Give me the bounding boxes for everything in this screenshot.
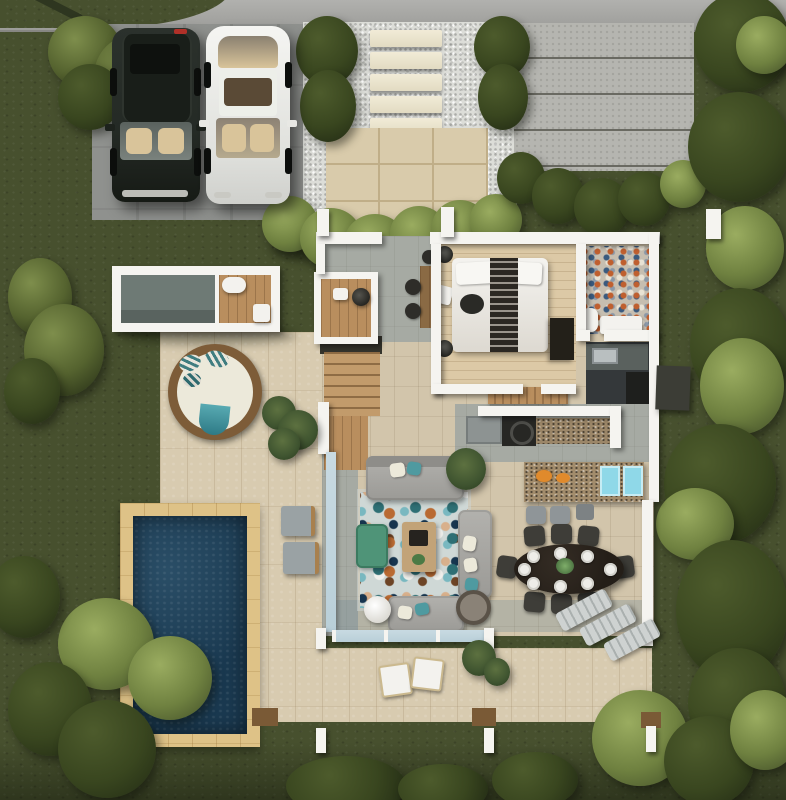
outbuilding-sink xyxy=(222,277,246,293)
tray xyxy=(409,530,428,546)
patio-chair xyxy=(410,656,445,692)
stove-burner xyxy=(510,421,534,445)
sedan-mirror xyxy=(287,120,297,127)
tree xyxy=(58,700,156,798)
plate xyxy=(518,563,531,576)
wall-bedroom-west xyxy=(431,244,441,394)
daybed-throw xyxy=(198,404,231,437)
suv-grille xyxy=(122,190,188,197)
wall-bedroom-south-a xyxy=(431,384,523,394)
wire-chair xyxy=(456,590,491,625)
stepping-stone xyxy=(370,74,442,91)
tree xyxy=(736,16,786,74)
kitchen-sink xyxy=(592,348,618,364)
terrace-plant xyxy=(484,658,510,686)
placemat xyxy=(600,466,620,496)
plate xyxy=(527,577,540,590)
entry-post xyxy=(317,209,329,236)
suv-mirror xyxy=(105,124,115,131)
wall-bathroom-south-a xyxy=(576,330,590,341)
pouf xyxy=(364,596,391,623)
plate xyxy=(554,580,567,593)
bed xyxy=(452,258,548,352)
patio-chair xyxy=(378,662,413,698)
mullion xyxy=(436,630,440,642)
pergola-post xyxy=(316,628,326,649)
sedan-seat xyxy=(250,124,274,152)
centerpiece-plant xyxy=(556,558,574,574)
round-daybed xyxy=(168,344,262,440)
stepping-stone xyxy=(370,96,442,113)
mullion xyxy=(384,630,388,642)
sedan-headlight xyxy=(214,192,231,198)
glass-wall-west xyxy=(326,452,336,632)
bed-throw xyxy=(460,294,484,314)
sedan-rear-window xyxy=(218,36,278,68)
stairs xyxy=(324,352,380,416)
placemat xyxy=(623,466,643,496)
cushion xyxy=(463,557,478,573)
concrete-pad xyxy=(514,23,694,171)
desk-paper xyxy=(333,288,348,300)
white-sedan xyxy=(206,26,290,204)
sedan-wheel xyxy=(285,62,292,88)
dining-chair xyxy=(523,525,546,547)
cushion xyxy=(389,462,406,478)
hedge xyxy=(478,64,528,130)
suv-wheel xyxy=(194,148,201,176)
pergola-post xyxy=(646,726,656,752)
cushion xyxy=(397,605,413,620)
wall-west-upper xyxy=(316,244,325,274)
flower-bowl xyxy=(556,473,570,483)
sedan-headlight xyxy=(265,192,282,198)
bar-stool xyxy=(526,506,546,524)
side-table xyxy=(576,504,594,520)
poolside-chair xyxy=(283,542,319,574)
suv-seat xyxy=(126,128,152,154)
wood-pad xyxy=(472,708,496,726)
tree xyxy=(4,358,60,424)
wall-bedroom-south-b xyxy=(541,384,576,394)
dishwasher xyxy=(466,416,502,444)
plate xyxy=(604,563,617,576)
flower-bowl xyxy=(536,470,552,482)
plate xyxy=(581,550,594,563)
indoor-plant xyxy=(446,448,486,490)
sofa-right xyxy=(458,510,492,598)
sedan-sunroof xyxy=(224,78,272,106)
suv-wheel xyxy=(110,68,117,96)
dining-chair xyxy=(523,591,546,613)
wall-bathroom-west xyxy=(576,244,586,336)
cushion xyxy=(462,535,477,552)
wood-pad xyxy=(252,708,278,726)
cushion-teal xyxy=(414,602,430,616)
tree xyxy=(492,752,578,800)
entry-post xyxy=(441,207,454,237)
kitchen-counter xyxy=(536,418,610,444)
tree xyxy=(688,92,786,202)
glass-wall-south xyxy=(332,630,492,642)
study-walls xyxy=(314,272,378,344)
suv-wheel xyxy=(194,68,201,96)
bed-runner xyxy=(490,258,518,352)
sedan-seat xyxy=(222,124,246,152)
outbuilding-cabinet xyxy=(253,304,270,322)
sedan-wheel xyxy=(285,148,292,174)
terrace-palm xyxy=(268,428,300,460)
tree xyxy=(700,338,784,434)
wall-west-mid xyxy=(318,402,329,454)
site-plan-render xyxy=(0,0,786,800)
suv-sunroof xyxy=(130,44,180,74)
suv-taillight xyxy=(174,29,187,34)
hedge xyxy=(300,70,356,142)
stepping-stone xyxy=(370,30,442,47)
plate xyxy=(527,550,540,563)
sofa-bottom xyxy=(388,596,464,632)
dining-chair xyxy=(551,524,572,544)
coffee-table xyxy=(402,522,436,572)
suv-wheel xyxy=(110,148,117,176)
sedan-mirror xyxy=(199,120,209,127)
stool xyxy=(405,279,421,295)
wall-hall xyxy=(478,406,618,416)
bar-stool xyxy=(550,506,570,524)
wall-front-right xyxy=(430,232,660,244)
fridge xyxy=(626,372,650,404)
cushion-teal xyxy=(406,461,422,476)
wall-stub xyxy=(610,406,621,448)
pergola-post xyxy=(316,728,326,753)
daybed-pillow xyxy=(183,373,201,387)
desk-chair xyxy=(352,288,370,306)
ac-unit xyxy=(655,365,691,410)
wardrobe xyxy=(550,318,574,360)
stepping-stone xyxy=(370,52,442,69)
suv-seat xyxy=(158,128,184,154)
stove xyxy=(502,414,536,446)
gate-post xyxy=(706,209,721,239)
sedan-wheel xyxy=(204,62,211,88)
ottoman xyxy=(356,524,388,568)
mullion xyxy=(332,630,336,642)
outbuilding-counter-front xyxy=(121,310,215,323)
black-suv xyxy=(112,28,200,202)
plate xyxy=(581,577,594,590)
pergola-post xyxy=(484,728,494,753)
tree xyxy=(128,636,212,720)
daybed-pillow xyxy=(203,348,230,370)
outbuilding xyxy=(112,266,280,332)
sedan-wheel xyxy=(204,148,211,174)
stool xyxy=(405,303,421,319)
bowl-green xyxy=(412,554,425,565)
poolside-chair xyxy=(281,506,315,536)
